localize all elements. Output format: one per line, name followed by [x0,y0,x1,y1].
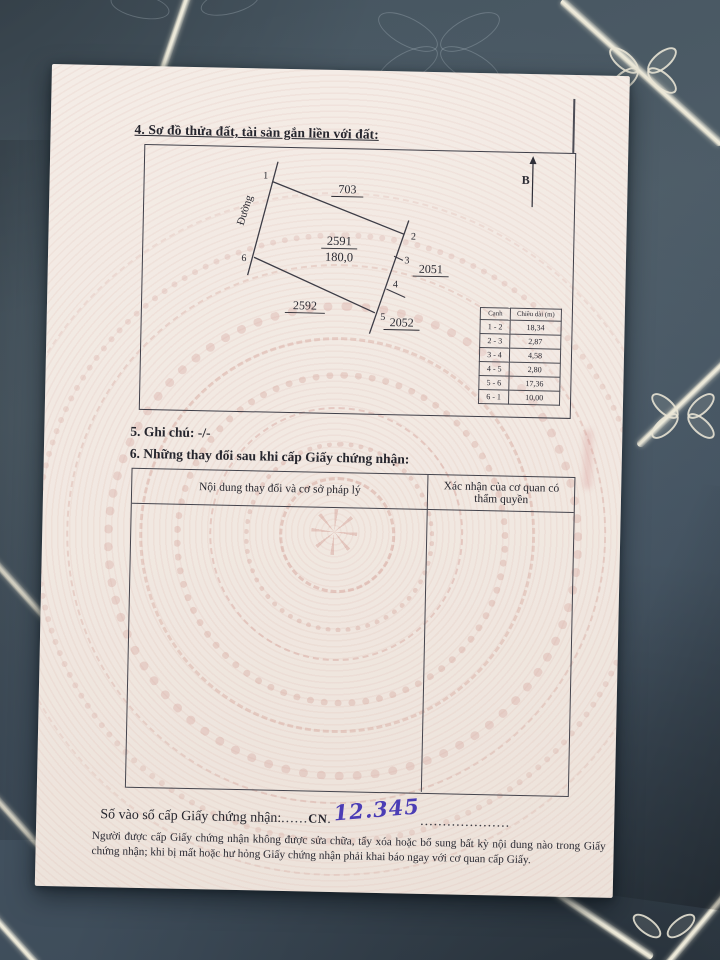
quilt-stitch-motif [108,0,172,24]
section4-heading: 4. Sơ đồ thửa đất, tài sản gắn liền với … [134,122,379,143]
vertex-label: 5 [380,312,385,323]
changes-table-col2-cell [421,510,573,795]
footer-notice: Người được cấp Giấy chứng nhận không đượ… [91,829,606,869]
parcel-diagram-box: B 1 2 3 4 5 6 703 2051 2052 2592 [139,144,576,419]
neighbor-parcel-number: 2051 [419,262,443,276]
neighbor-parcel-number: 2592 [293,298,317,312]
section6-heading: 6. Những thay đổi sau khi cấp Giấy chứng… [130,446,410,468]
changes-table: Nội dung thay đổi và cơ sở pháp lý Xác n… [125,468,576,797]
edge-table-header: Chiều dài (m) [510,308,561,321]
vertex-label: 3 [404,255,409,266]
changes-table-col1-cell [126,504,427,792]
section5-heading: 5. Ghi chú: -/- [130,424,211,442]
quilt-stripe [0,911,41,960]
parcel-number: 2591 [327,234,352,249]
parcel-area: 180,0 [325,250,353,265]
quilt-stitch-motif [198,0,262,21]
registry-code: CN [308,812,327,826]
certificate-paper: 4. Sơ đồ thửa đất, tài sản gắn liền với … [35,64,630,898]
changes-table-col1-header: Nội dung thay đổi và cơ sở pháp lý [132,469,428,509]
registry-label: Số vào sổ cấp Giấy chứng nhận: [100,807,281,826]
edge-length-table: Cạnh Chiều dài (m) 1 - 218,34 2 - 32,87 … [478,307,562,406]
vertex-label: 2 [411,232,416,243]
neighbor-parcel-number: 2052 [390,315,414,329]
table-row: 6 - 110,00 [478,390,559,406]
handwritten-registry-number: 12.345 [332,793,420,825]
vertex-label: 4 [393,279,398,290]
photo-bedding-background: 4. Sơ đồ thửa đất, tài sản gắn liền với … [0,0,720,960]
page-frame-line [572,99,575,153]
north-label: B [522,173,530,187]
vertex-label: 1 [263,170,268,181]
registry-number-line: Số vào sổ cấp Giấy chứng nhận:......CN.1… [100,798,510,832]
quilt-petal-motif [629,909,666,943]
changes-table-col2-header: Xác nhận của cơ quan có thẩm quyền [427,475,574,512]
edge-table-header: Cạnh [480,308,510,321]
neighbor-parcel-number: 703 [338,182,356,196]
vertex-label: 6 [241,253,246,264]
road-label: Đường [235,193,256,226]
north-arrow [532,163,533,207]
